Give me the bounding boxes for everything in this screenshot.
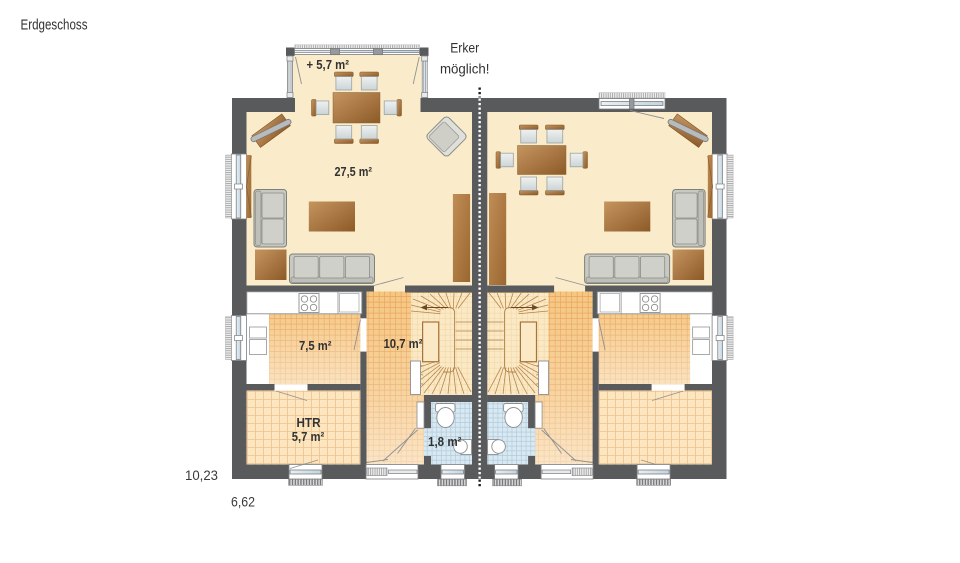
svg-text:6,62: 6,62 (231, 495, 255, 510)
svg-text:Erdgeschoss: Erdgeschoss (21, 17, 88, 34)
svg-text:HTR: HTR (297, 415, 322, 430)
svg-text:7,5 m²: 7,5 m² (299, 338, 332, 353)
svg-text:27,5 m²: 27,5 m² (335, 164, 373, 179)
svg-text:10,23: 10,23 (185, 468, 218, 483)
svg-text:Erker: Erker (450, 40, 479, 56)
svg-text:1,8 m²: 1,8 m² (428, 435, 462, 449)
svg-text:+ 5,7 m²: + 5,7 m² (307, 57, 350, 72)
svg-text:5,7 m²: 5,7 m² (292, 429, 325, 444)
svg-text:möglich!: möglich! (440, 61, 490, 77)
svg-text:10,7 m²: 10,7 m² (384, 336, 424, 351)
